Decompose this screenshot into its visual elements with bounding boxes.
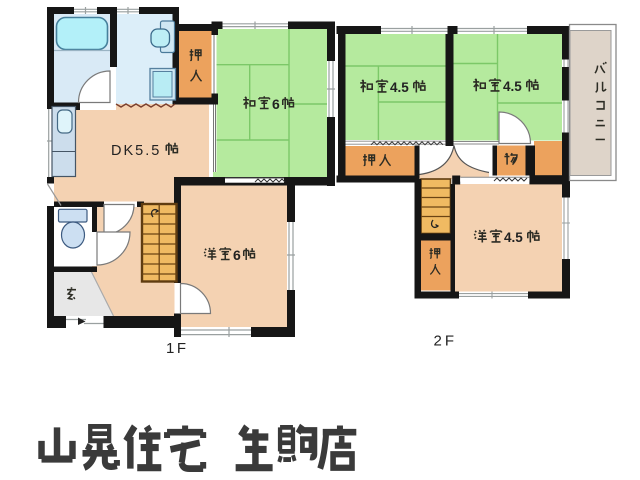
svg-text:6: 6 bbox=[233, 247, 241, 263]
svg-text:4.5: 4.5 bbox=[504, 230, 523, 245]
svg-text:4.5: 4.5 bbox=[503, 79, 522, 94]
svg-text:4.5: 4.5 bbox=[390, 80, 409, 95]
svg-text:1F: 1F bbox=[166, 340, 189, 357]
svg-text:DK5.5: DK5.5 bbox=[111, 143, 161, 159]
svg-text:2F: 2F bbox=[434, 333, 458, 350]
svg-text:6: 6 bbox=[272, 96, 280, 112]
